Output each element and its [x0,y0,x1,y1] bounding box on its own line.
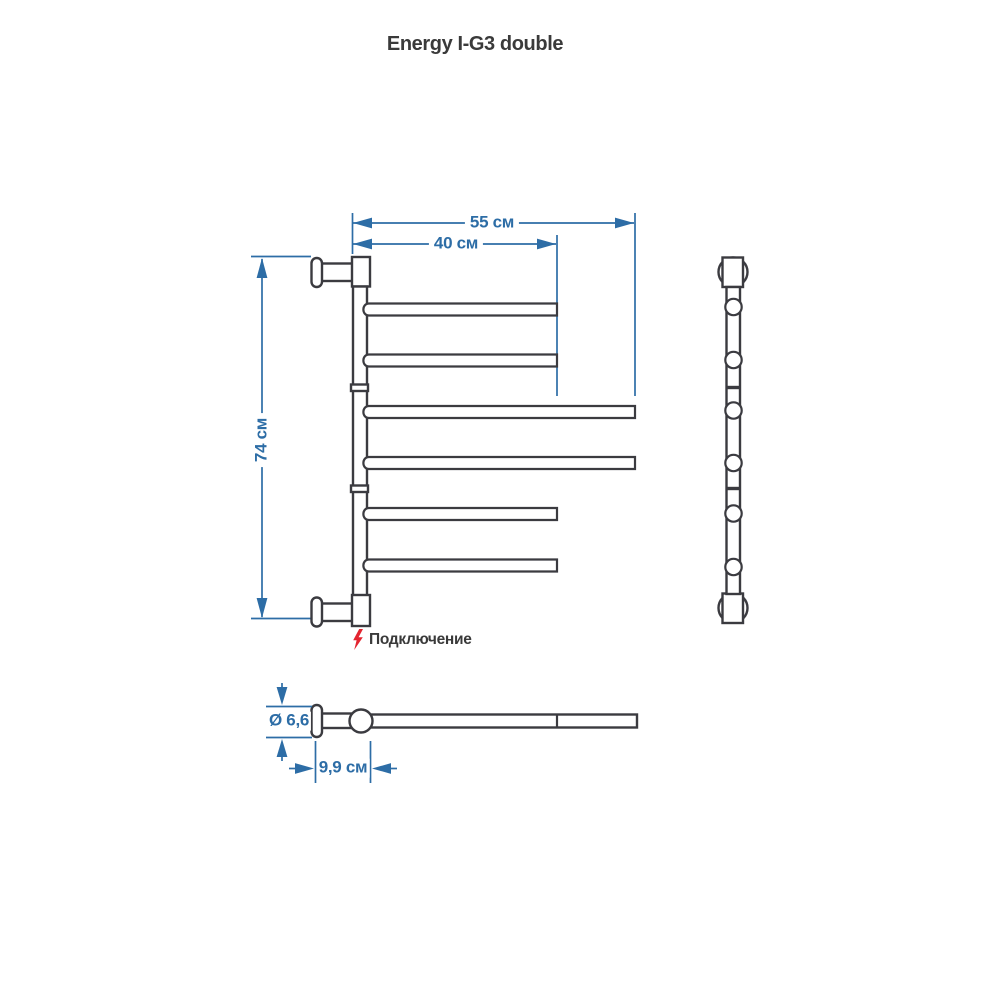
bracket-arm [320,264,354,282]
rail [363,355,557,367]
front-rails [363,304,635,572]
connection-callout: Подключение [352,629,472,650]
dim-label-55: 55 см [465,214,519,233]
bracket-arm [320,604,354,622]
side-view [719,258,748,624]
dim-label-74: 74 см [253,413,272,467]
arrowhead-down-icon [277,687,288,705]
connection-label: Подключение [369,631,472,649]
rail-end [725,352,741,368]
arrowhead-right-icon [537,239,556,250]
rail [363,560,557,572]
side-post [727,287,741,594]
front-bottom-bracket [312,595,371,627]
dim-label-depth: 9,9 см [317,759,370,778]
joint [351,385,368,392]
plan-rail [370,715,637,728]
arrowhead-right-icon [295,763,314,774]
lightning-icon [352,629,364,650]
pivot-circle [350,710,373,733]
arrowhead-up-icon [277,739,288,757]
arrowhead-left-icon [353,239,372,250]
plan-view [312,705,638,737]
arrowhead-left-icon [372,763,391,774]
rail-end [725,402,741,418]
front-view [312,257,636,627]
rail-end [725,505,741,521]
bracket-block [352,595,370,626]
joint [351,486,368,493]
rail-end [725,455,741,471]
bracket-block [352,257,370,287]
rail [363,457,635,469]
rail [363,406,635,418]
dim-label-40: 40 см [429,235,483,254]
arrowhead-left-icon [353,218,372,229]
rail [363,508,557,520]
front-top-bracket [312,257,371,287]
rail [363,304,557,316]
wall-cap [312,258,323,287]
front-post [353,287,367,596]
arrowhead-down-icon [257,598,268,618]
wall-cap [312,705,323,737]
dim-label-diameter: Ø 6,6 [267,712,311,731]
wall-cap [312,598,323,627]
arrowhead-up-icon [257,258,268,278]
arrowhead-right-icon [615,218,634,229]
rail-end [725,559,741,575]
drawing-canvas: Energy I-G3 double [0,0,1000,1000]
bracket-block [723,594,744,624]
rail-end [725,299,741,315]
technical-drawing [0,0,1000,1000]
bracket-block [723,258,744,288]
